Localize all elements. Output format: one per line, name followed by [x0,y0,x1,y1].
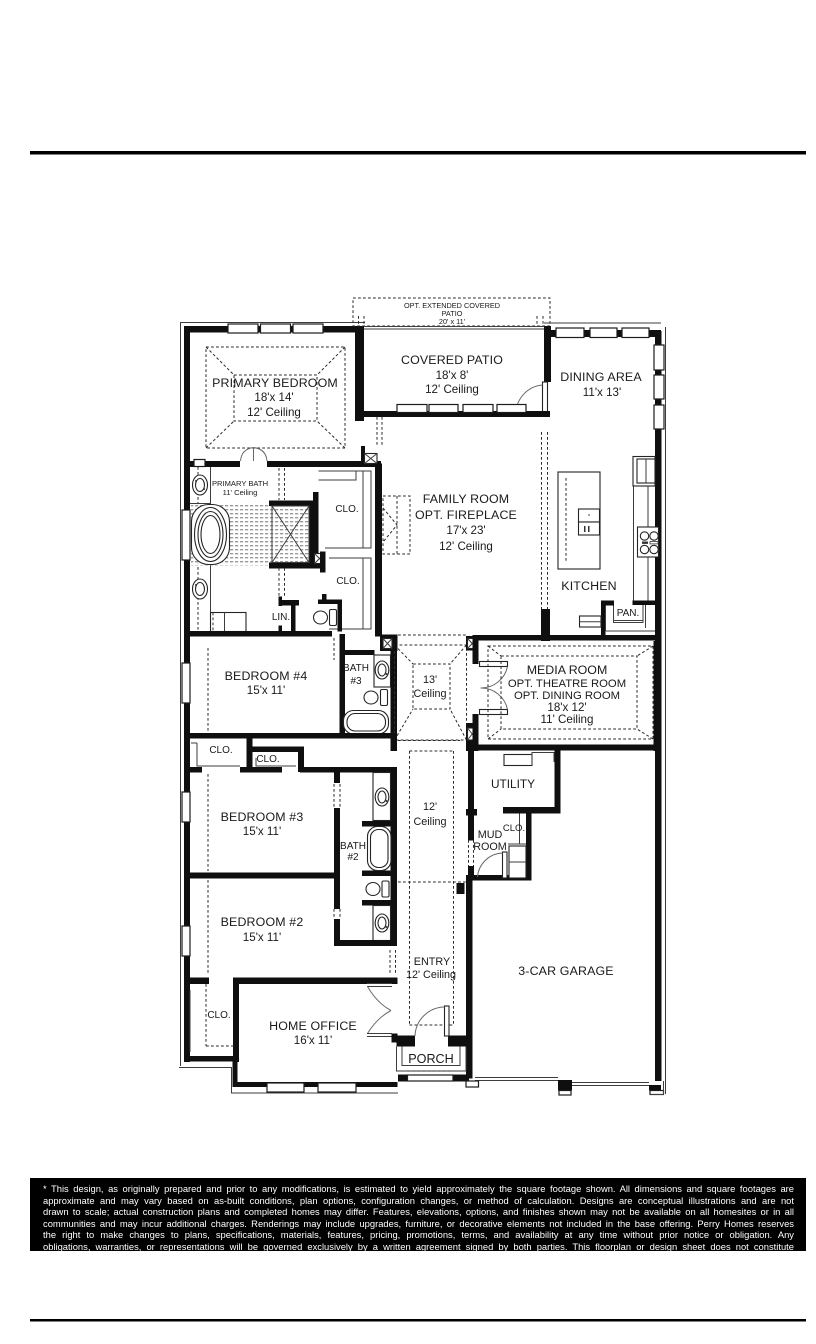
svg-text:DINING AREA: DINING AREA [560,370,642,384]
svg-text:18'x 8': 18'x 8' [436,369,469,382]
svg-text:PRIMARY BEDROOM: PRIMARY BEDROOM [212,376,338,390]
svg-text:BEDROOM #4: BEDROOM #4 [225,669,308,683]
svg-text:BEDROOM #3: BEDROOM #3 [221,810,304,824]
svg-text:12' Ceiling: 12' Ceiling [425,383,479,396]
svg-text:UTILITY: UTILITY [491,777,535,791]
svg-text:15'x 11': 15'x 11' [247,684,285,697]
svg-text:#3: #3 [350,676,362,687]
svg-text:Ceiling: Ceiling [413,688,446,700]
svg-text:LIN.: LIN. [272,612,290,623]
svg-text:20' x 11': 20' x 11' [439,317,466,326]
svg-text:HOME OFFICE: HOME OFFICE [269,1019,357,1033]
svg-text:COVERED PATIO: COVERED PATIO [401,353,503,367]
svg-text:Ceiling: Ceiling [413,816,446,828]
svg-text:BATH: BATH [340,841,366,852]
svg-text:11' Ceiling: 11' Ceiling [541,713,594,726]
svg-text:ENTRY: ENTRY [414,956,450,968]
svg-text:MEDIA ROOM: MEDIA ROOM [527,663,608,677]
svg-text:OPT. FIREPLACE: OPT. FIREPLACE [415,508,517,522]
svg-text:15'x 11': 15'x 11' [243,931,281,944]
svg-text:FAMILY ROOM: FAMILY ROOM [423,492,510,506]
svg-text:CLO.: CLO. [335,504,358,515]
svg-text:12': 12' [423,801,437,813]
svg-text:12' Ceiling: 12' Ceiling [247,406,301,419]
svg-text:15'x 11': 15'x 11' [243,825,281,838]
svg-text:17'x 23': 17'x 23' [446,524,485,537]
svg-text:CLO.: CLO. [209,745,232,756]
svg-text:16'x 11': 16'x 11' [294,1034,332,1047]
svg-text:BEDROOM #2: BEDROOM #2 [221,915,304,929]
svg-text:11' Ceiling: 11' Ceiling [223,488,258,497]
svg-text:ROOM: ROOM [473,841,507,853]
svg-text:OPT. THEATRE ROOM: OPT. THEATRE ROOM [508,678,626,690]
svg-text:CLO.: CLO. [503,823,525,834]
svg-text:MUD: MUD [478,829,503,841]
svg-text:CLO.: CLO. [207,1010,230,1021]
svg-text:CLO.: CLO. [256,754,279,765]
svg-text:18'x 14': 18'x 14' [254,391,293,404]
svg-text:PAN.: PAN. [617,608,640,619]
svg-text:3-CAR GARAGE: 3-CAR GARAGE [518,964,613,978]
svg-text:CLO.: CLO. [336,576,359,587]
svg-text:PORCH: PORCH [408,1052,453,1066]
svg-text:13': 13' [423,674,437,686]
svg-text:12' Ceiling: 12' Ceiling [439,540,493,553]
svg-text:KITCHEN: KITCHEN [561,579,616,593]
svg-text:#2: #2 [347,852,359,863]
svg-text:BATH: BATH [343,663,369,674]
svg-text:PRIMARY BATH: PRIMARY BATH [212,479,268,488]
svg-text:12' Ceiling: 12' Ceiling [406,969,456,981]
svg-text:11'x 13': 11'x 13' [583,386,621,399]
